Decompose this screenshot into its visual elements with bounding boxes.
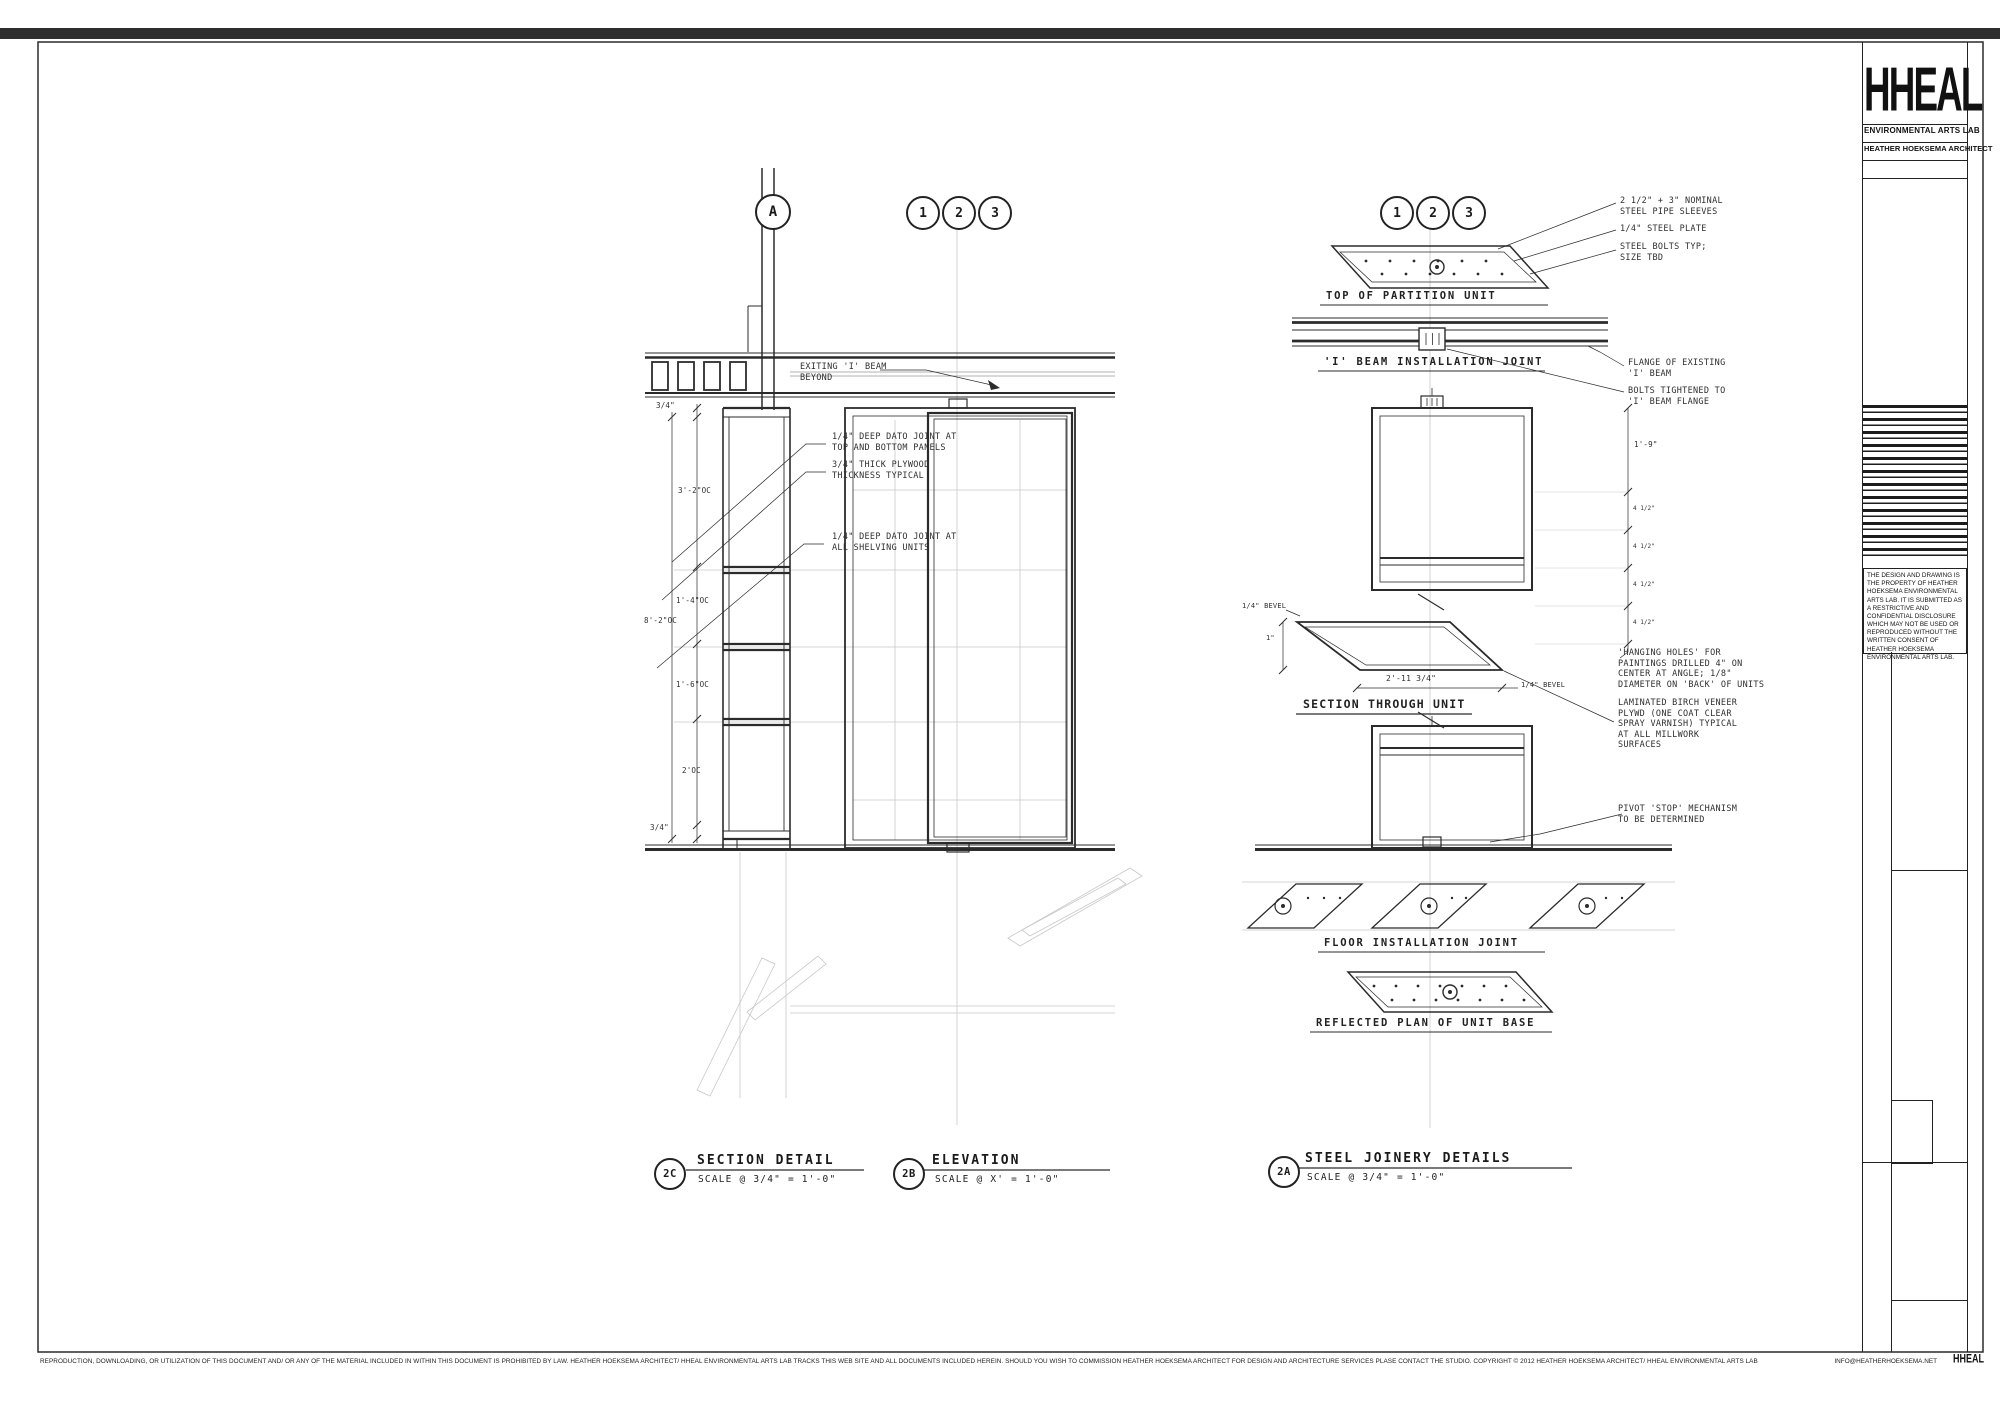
dim-hole-spacing-1: 4 1/2" [1633, 505, 1655, 512]
elevation-grid-bubble-2: 2 [942, 196, 976, 230]
callout-flange: FLANGE OF EXISTING 'I' BEAM [1628, 358, 1726, 379]
annotation-dato-top: 1/4" DEEP DATO JOINT AT TOP AND BOTTOM P… [832, 432, 957, 453]
scale-section-detail: SCALE @ 3/4" = 1'-0" [698, 1174, 836, 1185]
joinery-grid-bubble-3: 3 [1452, 196, 1486, 230]
dim-overall: 8'-2"OC [644, 616, 677, 625]
dim-d3: 1'-6"OC [676, 680, 709, 689]
callout-bolts-tightened: BOLTS TIGHTENED TO 'I' BEAM FLANGE [1628, 386, 1726, 407]
elevation-grid-bubble-1: 1 [906, 196, 940, 230]
dim-d1: 3'-2"OC [678, 486, 711, 495]
title-block: HHEAL ENVIRONMENTAL ARTS LAB HEATHER HOE… [1862, 42, 1968, 1352]
annotation-dato-shelving: 1/4" DEEP DATO JOINT AT ALL SHELVING UNI… [832, 532, 957, 553]
title-block-cell [1891, 1100, 1933, 1164]
drawing-number-2c: 2C [654, 1158, 686, 1190]
cabinet-section [723, 408, 790, 849]
joinery-grid-bubble-2: 2 [1416, 196, 1450, 230]
callout-steel-bolts: STEEL BOLTS TYP; SIZE TBD [1620, 242, 1707, 263]
label-section-through: SECTION THROUGH UNIT [1303, 697, 1465, 711]
title-block-hatch [1863, 405, 1967, 557]
dim-depth: 1" [1266, 634, 1275, 642]
ibeam-joint-detail [1292, 318, 1624, 392]
callout-pivot: PIVOT 'STOP' MECHANISM TO BE DETERMINED [1618, 804, 1737, 825]
footer-logo: HHEAL [1953, 1352, 1984, 1365]
callout-steel-plate: 1/4" STEEL PLATE [1620, 224, 1707, 235]
firm-name: ENVIRONMENTAL ARTS LAB [1864, 126, 1966, 135]
title-steel-joinery: STEEL JOINERY DETAILS [1305, 1151, 1511, 1166]
title-underlines [686, 1168, 1572, 1170]
callout-hanging-holes: 'HANGING HOLES' FOR PAINTINGS DRILLED 4"… [1618, 648, 1764, 690]
scale-steel-joinery: SCALE @ 3/4" = 1'-0" [1307, 1172, 1445, 1183]
title-block-rule [1863, 160, 1967, 161]
title-block-rule [1891, 1300, 1967, 1301]
annotation-exiting-beam: EXITING 'I' BEAM BEYOND [800, 362, 887, 383]
title-block-rule [1863, 124, 1967, 125]
dim-hole-spacing-3: 4 1/2" [1633, 581, 1655, 588]
dim-hole-spacing-4: 4 1/2" [1633, 619, 1655, 626]
dim-bottom-panel: 3/4" [650, 823, 669, 832]
legal-notice: REPRODUCTION, DOWNLOADING, OR UTILIZATIO… [40, 1358, 1818, 1365]
joinery-grid-bubble-1: 1 [1380, 196, 1414, 230]
drawing-number-2b: 2B [893, 1158, 925, 1190]
label-top-of-partition: TOP OF PARTITION UNIT [1326, 290, 1497, 302]
elevation-grid-bubble-3: 3 [978, 196, 1012, 230]
title-block-rule [1863, 178, 1967, 179]
scale-elevation: SCALE @ X' = 1'-0" [935, 1174, 1060, 1185]
dim-width: 2'-11 3/4" [1386, 674, 1436, 683]
dim-top-panel: 3/4" [656, 401, 675, 410]
unit-top-section [1372, 388, 1632, 658]
label-ibeam-joint: 'I' BEAM INSTALLATION JOINT [1324, 356, 1543, 368]
callout-laminated: LAMINATED BIRCH VENEER PLYWD (ONE COAT C… [1618, 698, 1737, 751]
drawing-sheet: A 1 2 3 1 2 3 EXITING 'I' BEAM BEYOND 1/… [0, 0, 2000, 1410]
drawing-number-2a: 2A [1268, 1156, 1300, 1188]
dim-hole-spacing-2: 4 1/2" [1633, 543, 1655, 550]
dim-height: 1'-9" [1634, 440, 1658, 449]
title-block-divider [1891, 652, 1892, 1352]
dim-bevel-right: 1/4" BEVEL [1521, 681, 1565, 689]
title-elevation: ELEVATION [932, 1153, 1020, 1168]
title-section-detail: SECTION DETAIL [697, 1153, 835, 1168]
dim-d4: 2'OC [682, 766, 701, 775]
annotation-plywood: 3/4" THICK PLYWOOD THICKNESS TYPICAL [832, 460, 930, 481]
title-block-rule [1863, 142, 1967, 143]
section-leaders [657, 370, 1000, 668]
copyright-disclaimer: THE DESIGN AND DRAWING IS THE PROPERTY O… [1863, 568, 1967, 654]
sheet-footer: REPRODUCTION, DOWNLOADING, OR UTILIZATIO… [40, 1355, 1984, 1365]
callout-pipe-sleeves: 2 1/2" + 3" NOMINAL STEEL PIPE SLEEVES [1620, 196, 1723, 217]
firm-logo: HHEAL [1864, 56, 1958, 126]
label-reflected-plan: REFLECTED PLAN OF UNIT BASE [1316, 1017, 1535, 1029]
unit-bottom-section [1372, 716, 1622, 848]
dim-d2: 1'-4"OC [676, 596, 709, 605]
grid-bubble-a: A [755, 194, 791, 230]
architect-name: HEATHER HOEKSEMA ARCHITECT [1864, 144, 1966, 153]
title-block-rule [1891, 870, 1967, 871]
label-floor-joint: FLOOR INSTALLATION JOINT [1324, 937, 1519, 949]
contact-email: INFO@HEATHERHOEKSEMA.NET [1834, 1358, 1937, 1365]
dim-bevel-left: 1/4" BEVEL [1242, 602, 1286, 610]
